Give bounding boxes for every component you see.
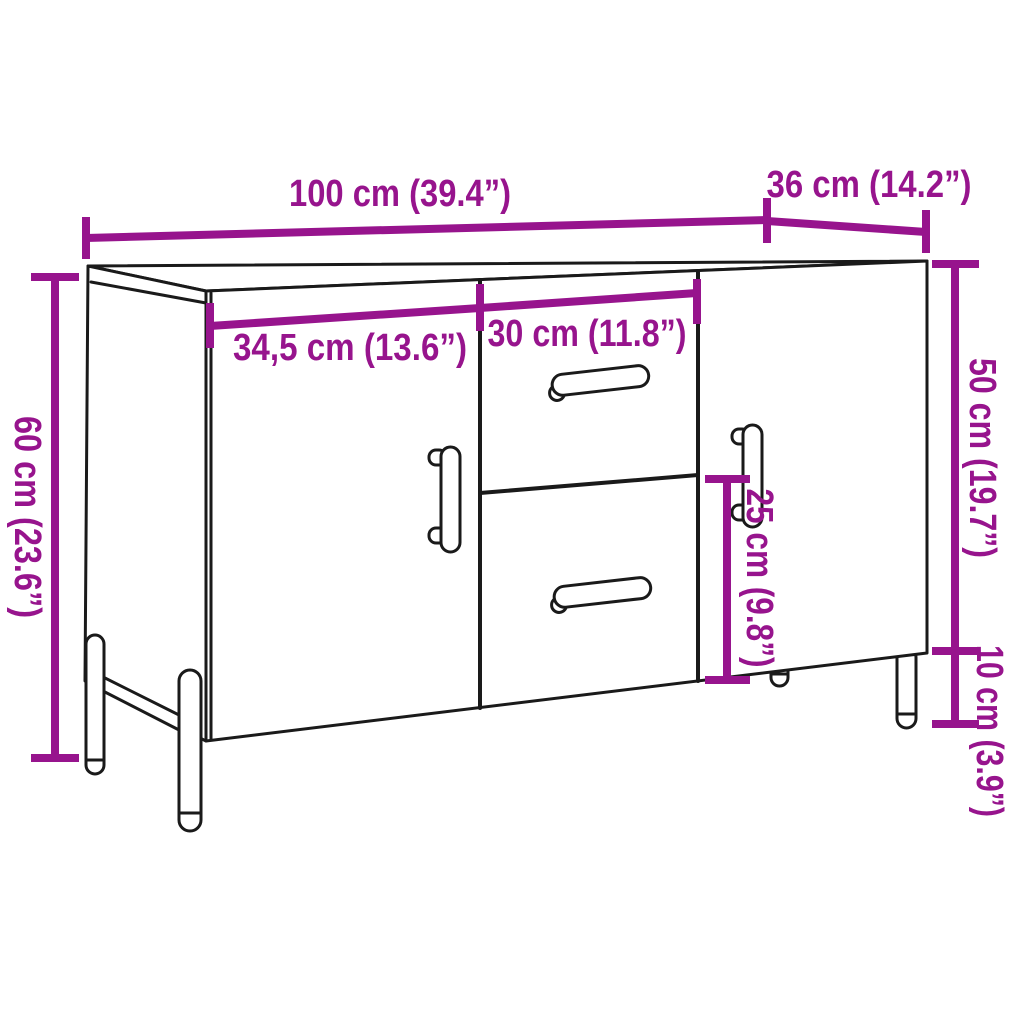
dimension-diagram: 100 cm (39.4”) 36 cm (14.2”) 34,5 cm (13…: [0, 0, 1024, 1024]
label-left-door-width: 34,5 cm (13.6”): [233, 327, 467, 369]
dimension-depth: [767, 210, 926, 253]
front-right-leg: [897, 648, 916, 728]
back-left-leg: [86, 635, 104, 774]
label-overall-width: 100 cm (39.4”): [289, 173, 511, 215]
label-drawer-width: 30 cm (11.8”): [488, 313, 687, 355]
label-lower-section-height: 25 cm (9.8”): [738, 489, 780, 668]
product-dimension-image: 100 cm (39.4”) 36 cm (14.2”) 34,5 cm (13…: [0, 0, 1024, 1024]
label-overall-height: 60 cm (23.6”): [6, 416, 48, 618]
label-depth: 36 cm (14.2”): [767, 164, 972, 206]
handle-bar: [441, 447, 460, 552]
label-body-height: 50 cm (19.7”): [961, 358, 1003, 558]
front-left-leg: [179, 670, 201, 831]
label-leg-height: 10 cm (3.9”): [968, 645, 1010, 817]
